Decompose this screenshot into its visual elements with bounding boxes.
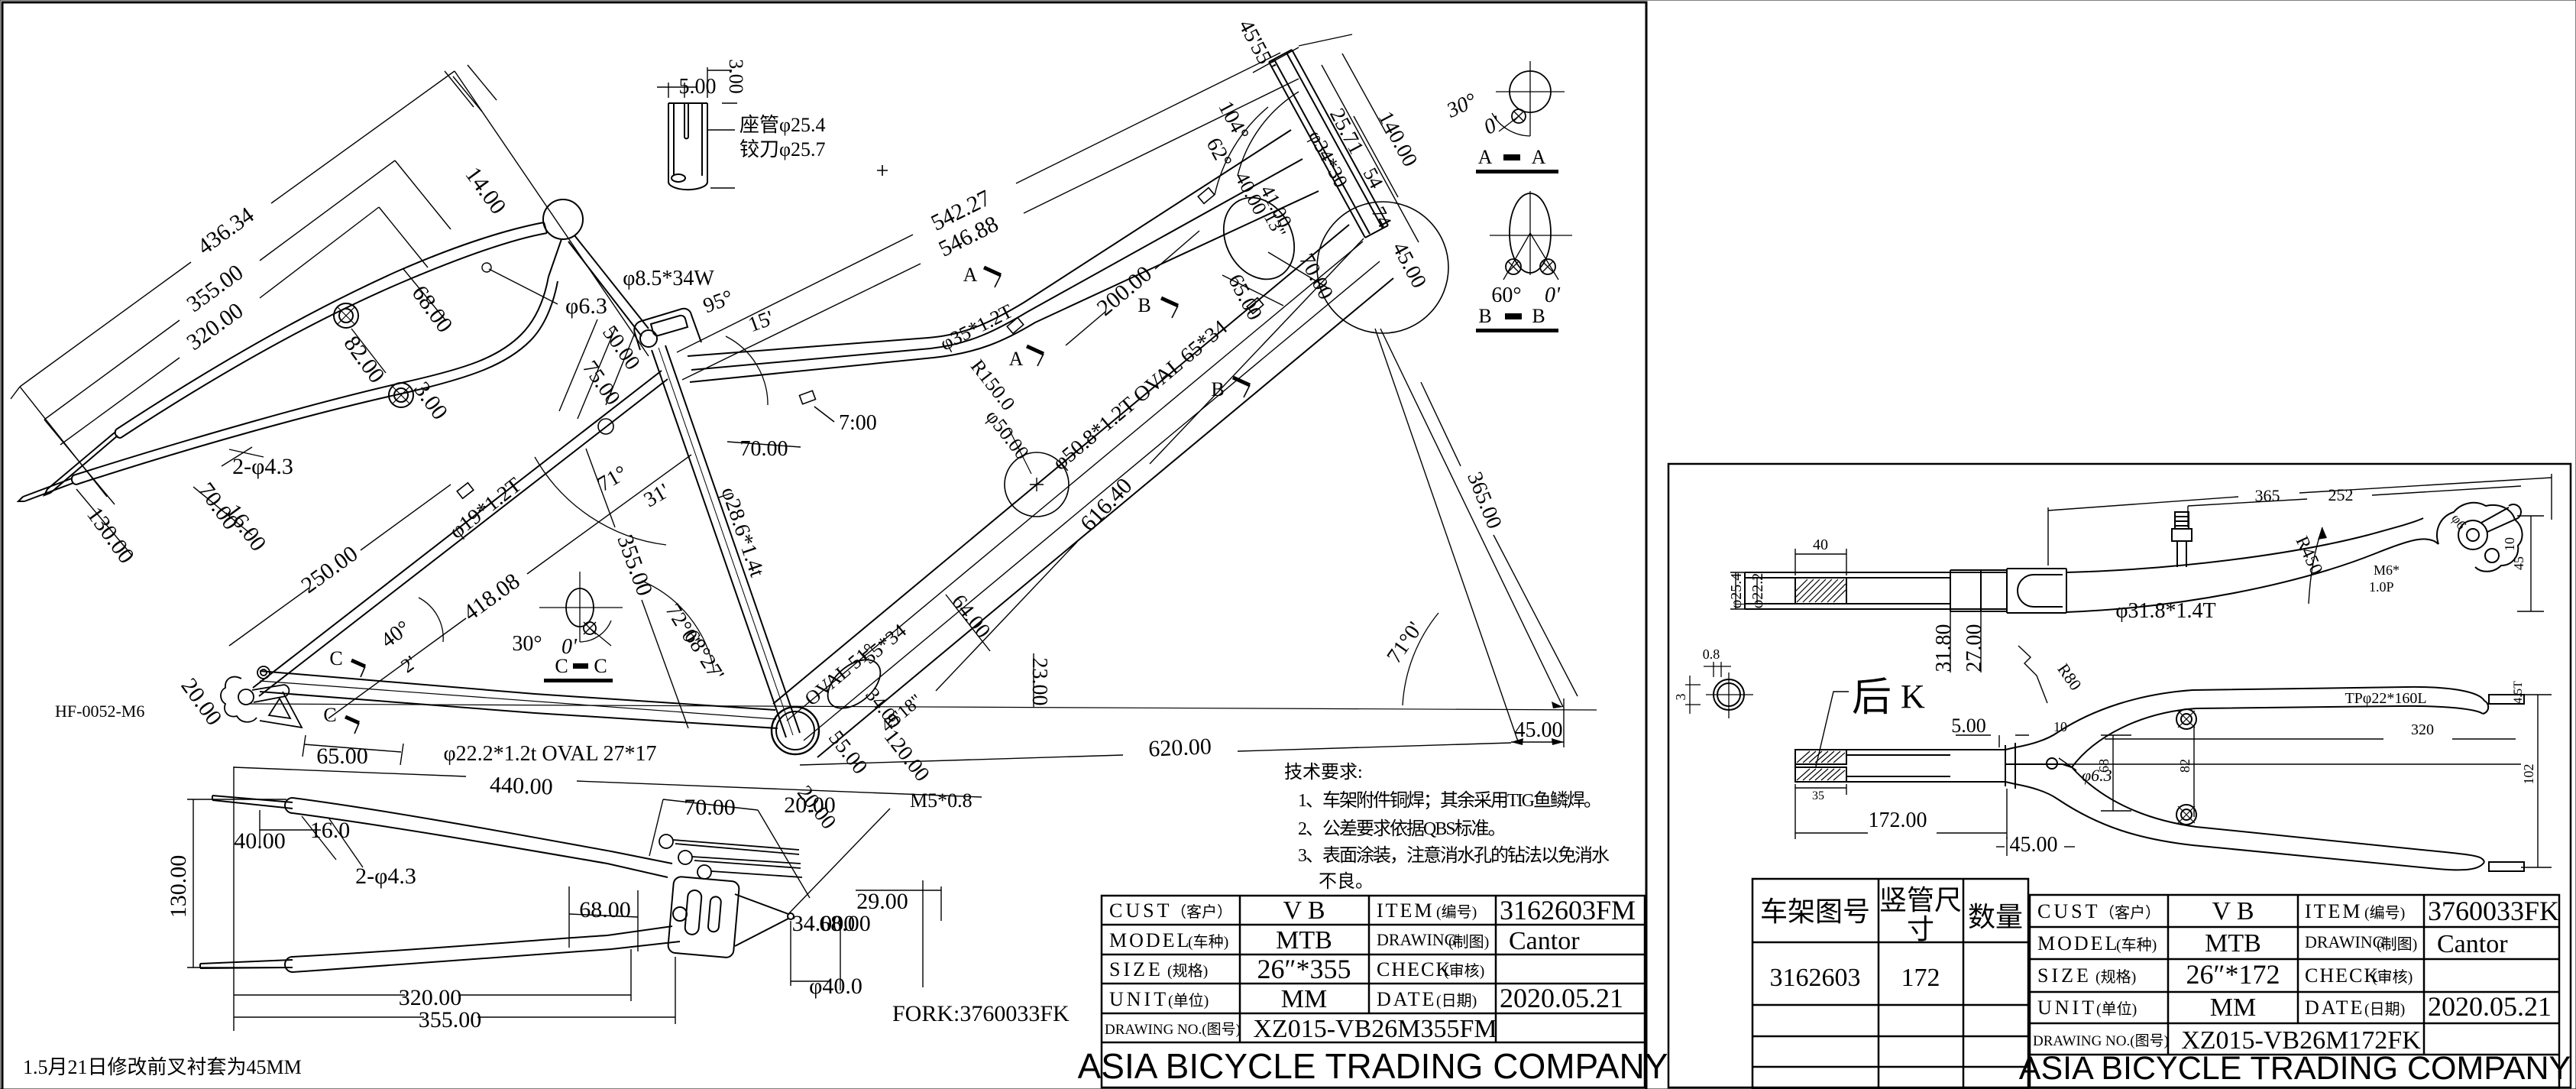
- svg-text:26″*172: 26″*172: [2186, 959, 2280, 990]
- svg-text:(制图): (制图): [1448, 933, 1489, 951]
- svg-text:82.00: 82.00: [338, 331, 389, 387]
- svg-text:60°: 60°: [1491, 284, 1521, 307]
- svg-text:45.00: 45.00: [1515, 718, 1563, 742]
- svg-text:365: 365: [2255, 486, 2280, 505]
- svg-text:68°27': 68°27': [679, 626, 729, 685]
- svg-text:C: C: [329, 647, 342, 669]
- svg-text:45: 45: [2511, 556, 2526, 570]
- svg-text:MM: MM: [1281, 985, 1327, 1013]
- svg-text:(规格): (规格): [2095, 968, 2136, 986]
- svg-text:16.0: 16.0: [310, 818, 351, 843]
- svg-text:(单位): (单位): [1168, 992, 1209, 1010]
- svg-text:CUST: CUST: [2037, 900, 2100, 922]
- svg-text:Cantor: Cantor: [1509, 927, 1580, 955]
- svg-text:（客户）: （客户）: [1171, 903, 1232, 921]
- svg-text:68.00: 68.00: [819, 911, 871, 936]
- svg-text:CUST: CUST: [1109, 899, 1172, 922]
- svg-text:UNIT: UNIT: [1109, 988, 1169, 1010]
- svg-text:20.00: 20.00: [784, 792, 836, 818]
- svg-text:14.00: 14.00: [460, 162, 510, 219]
- svg-text:K: K: [1901, 678, 1925, 715]
- svg-text:φ40.0: φ40.0: [809, 974, 862, 999]
- svg-text:(审核): (审核): [1444, 962, 1484, 980]
- svg-text:MTB: MTB: [1276, 926, 1332, 954]
- svg-text:5.00: 5.00: [1951, 715, 1986, 737]
- svg-text:DATE: DATE: [2305, 997, 2364, 1019]
- svg-text:3、表面涂装，注意消水孔的钻法以免消水: 3、表面涂装，注意消水孔的钻法以免消水: [1298, 845, 1610, 866]
- svg-text:A: A: [1009, 348, 1024, 370]
- svg-text:1.0P: 1.0P: [2369, 579, 2394, 595]
- svg-text:(制图): (制图): [2377, 935, 2417, 953]
- svg-text:2、公差要求依据QBS标准。: 2、公差要求依据QBS标准。: [1298, 818, 1505, 839]
- svg-text:MM: MM: [2210, 993, 2256, 1022]
- svg-text:HF-0052-M6: HF-0052-M6: [55, 702, 144, 721]
- svg-text:27.00: 27.00: [1963, 624, 1986, 673]
- svg-text:54: 54: [1359, 164, 1388, 193]
- svg-text:C: C: [555, 655, 568, 677]
- svg-text:10: 10: [2053, 719, 2067, 734]
- svg-text:(日期): (日期): [1436, 993, 1477, 1010]
- svg-text:68.00: 68.00: [579, 897, 631, 922]
- svg-text:26″*355: 26″*355: [1257, 954, 1351, 984]
- svg-text:CHECK: CHECK: [2305, 964, 2380, 987]
- svg-text:70.00: 70.00: [740, 437, 788, 461]
- svg-text:4.5T: 4.5T: [2512, 681, 2525, 704]
- svg-text:DRAWING: DRAWING: [2305, 932, 2385, 951]
- svg-text:102: 102: [2521, 764, 2536, 785]
- svg-text:55.00: 55.00: [824, 726, 872, 779]
- svg-text:(编号): (编号): [1436, 903, 1477, 921]
- svg-text:B: B: [1532, 305, 1545, 327]
- svg-text:φ22.2: φ22.2: [1749, 573, 1766, 609]
- svg-text:3.00: 3.00: [409, 377, 453, 424]
- svg-text:R80: R80: [2053, 660, 2086, 694]
- svg-text:3760033FK: 3760033FK: [2428, 896, 2559, 926]
- svg-text:φ8.5*34W: φ8.5*34W: [623, 267, 714, 290]
- svg-text:95°: 95°: [700, 286, 736, 319]
- svg-text:252: 252: [2328, 485, 2354, 504]
- svg-text:418.08: 418.08: [458, 569, 524, 626]
- svg-text:30°: 30°: [512, 632, 542, 656]
- svg-text:B: B: [1211, 378, 1224, 400]
- svg-text:82: 82: [2177, 759, 2193, 773]
- svg-text:2020.05.21: 2020.05.21: [2428, 991, 2552, 1022]
- svg-text:0.8: 0.8: [1703, 647, 1720, 662]
- svg-text:3: 3: [1673, 694, 1688, 701]
- svg-text:DATE: DATE: [1377, 988, 1436, 1010]
- svg-text:FORK:3760033FK: FORK:3760033FK: [892, 1001, 1070, 1026]
- svg-text:31.80: 31.80: [1932, 624, 1956, 673]
- svg-text:320: 320: [2411, 721, 2434, 738]
- svg-text:数量: 数量: [1968, 902, 2023, 932]
- svg-text:70.00: 70.00: [1294, 250, 1338, 303]
- svg-text:DRAWING NO.(图号): DRAWING NO.(图号): [2033, 1033, 2169, 1049]
- svg-text:616.40: 616.40: [1076, 473, 1138, 536]
- svg-text:3162603: 3162603: [1770, 964, 1861, 992]
- svg-text:B: B: [1138, 294, 1150, 316]
- svg-text:SIZE: SIZE: [1109, 958, 1163, 980]
- svg-text:ITEM: ITEM: [2305, 900, 2363, 922]
- svg-text:MODEL: MODEL: [2037, 932, 2119, 954]
- svg-text:MTB: MTB: [2205, 929, 2261, 958]
- svg-text:40: 40: [1813, 536, 1828, 553]
- svg-text:440.00: 440.00: [490, 772, 554, 799]
- svg-text:φ19*1.2T: φ19*1.2T: [445, 473, 526, 543]
- svg-text:ITEM: ITEM: [1377, 899, 1435, 922]
- svg-text:SIZE: SIZE: [2037, 964, 2092, 987]
- svg-text:15': 15': [745, 306, 777, 337]
- svg-text:寸: 寸: [1907, 914, 1934, 945]
- svg-text:φ50.8*1.2T OVAL 65*34: φ50.8*1.2T OVAL 65*34: [1048, 316, 1231, 475]
- svg-text:V B: V B: [1283, 896, 1325, 925]
- svg-text:技术要求:: 技术要求:: [1284, 762, 1363, 783]
- svg-text:65.00: 65.00: [316, 744, 368, 769]
- svg-text:ASIA BICYCLE TRADING COMPANY: ASIA BICYCLE TRADING COMPANY: [2019, 1050, 2571, 1087]
- svg-text:ASIA BICYCLE TRADING COMPANY: ASIA BICYCLE TRADING COMPANY: [1078, 1046, 1668, 1086]
- svg-text:MODEL: MODEL: [1109, 929, 1191, 951]
- svg-text:A: A: [1532, 146, 1546, 168]
- svg-text:71°0': 71°0': [1383, 617, 1428, 667]
- svg-text:436.34: 436.34: [193, 203, 258, 260]
- svg-text:B: B: [1478, 305, 1491, 327]
- svg-text:40.00: 40.00: [234, 828, 286, 854]
- svg-text:40°: 40°: [377, 616, 415, 653]
- svg-text:A: A: [1478, 146, 1493, 168]
- svg-text:φ35*1.2T: φ35*1.2T: [937, 300, 1016, 355]
- svg-text:M6*: M6*: [2374, 562, 2400, 578]
- svg-text:(规格): (规格): [1167, 962, 1208, 980]
- svg-text:0': 0': [1545, 284, 1561, 307]
- svg-text:(日期): (日期): [2364, 1001, 2405, 1018]
- svg-text:172: 172: [1901, 964, 1940, 992]
- svg-text:CHECK: CHECK: [1377, 958, 1451, 980]
- svg-text:140.00: 140.00: [1374, 108, 1422, 171]
- svg-text:31': 31': [640, 479, 674, 512]
- svg-text:DRAWING NO.(图号): DRAWING NO.(图号): [1105, 1022, 1241, 1038]
- svg-text:250.00: 250.00: [296, 541, 362, 598]
- svg-text:355.00: 355.00: [419, 1007, 482, 1032]
- svg-text:5.00: 5.00: [679, 75, 717, 99]
- svg-text:130.00: 130.00: [82, 502, 139, 568]
- svg-text:20.00: 20.00: [176, 673, 226, 730]
- svg-text:(编号): (编号): [2364, 904, 2405, 922]
- svg-text:XZ015-VB26M355FM: XZ015-VB26M355FM: [1253, 1015, 1497, 1043]
- svg-text:68: 68: [2096, 759, 2112, 773]
- svg-text:UNIT: UNIT: [2037, 997, 2097, 1019]
- svg-text:365.00: 365.00: [1462, 468, 1506, 532]
- svg-text:355.00: 355.00: [612, 531, 657, 599]
- svg-text:R450: R450: [2292, 533, 2327, 578]
- svg-text:φ28.6*1.4t: φ28.6*1.4t: [717, 485, 769, 581]
- svg-text:C: C: [594, 655, 607, 677]
- svg-text:（客户）: （客户）: [2099, 904, 2160, 922]
- svg-text:DRAWING: DRAWING: [1377, 930, 1457, 949]
- svg-text:φ22.2*1.2t OVAL 27*17: φ22.2*1.2t OVAL 27*17: [443, 742, 656, 766]
- svg-text:3162603FM: 3162603FM: [1500, 895, 1636, 925]
- svg-text:V B: V B: [2212, 897, 2254, 925]
- svg-text:172.00: 172.00: [1869, 809, 1927, 832]
- svg-text:座管φ25.4: 座管φ25.4: [739, 114, 826, 136]
- svg-text:71°: 71°: [594, 461, 631, 496]
- svg-text:A: A: [963, 264, 978, 286]
- svg-text:620.00: 620.00: [1148, 734, 1212, 762]
- svg-text:2-φ4.3: 2-φ4.3: [355, 864, 416, 889]
- svg-text:竖管尺: 竖管尺: [1879, 885, 1962, 916]
- svg-text:φ31.8*1.4T: φ31.8*1.4T: [2115, 599, 2215, 623]
- svg-text:45.00: 45.00: [1387, 238, 1431, 292]
- svg-text:7:00: 7:00: [839, 411, 877, 435]
- svg-text:120.00: 120.00: [879, 725, 934, 786]
- svg-text:45.00: 45.00: [2010, 833, 2058, 857]
- svg-text:2-φ4.3: 2-φ4.3: [232, 454, 293, 479]
- svg-text:车架图号: 车架图号: [1760, 896, 1870, 927]
- svg-text:30°: 30°: [1442, 89, 1481, 123]
- svg-text:2020.05.21: 2020.05.21: [1500, 983, 1623, 1013]
- svg-text:后: 后: [1852, 676, 1892, 720]
- svg-text:M5*0.8: M5*0.8: [910, 789, 972, 812]
- svg-text:70.00: 70.00: [684, 795, 736, 820]
- svg-text:35: 35: [1812, 789, 1824, 802]
- svg-text:3.00: 3.00: [725, 59, 747, 94]
- svg-text:(车种): (车种): [1188, 933, 1228, 951]
- svg-text:1、车架附件铜焊；其余采用TIG鱼鳞焊。: 1、车架附件铜焊；其余采用TIG鱼鳞焊。: [1298, 790, 1600, 811]
- svg-text:φ6: φ6: [2448, 511, 2470, 532]
- svg-text:(单位): (单位): [2096, 1000, 2137, 1018]
- svg-text:10: 10: [2502, 537, 2517, 551]
- svg-text:C: C: [323, 704, 336, 726]
- svg-text:TPφ22*160L: TPφ22*160L: [2345, 690, 2426, 707]
- svg-text:铰刀φ25.7: 铰刀φ25.7: [739, 138, 826, 160]
- svg-text:(审核): (审核): [2372, 968, 2413, 986]
- svg-text:1.5月21日修改前叉衬套为45MM: 1.5月21日修改前叉衬套为45MM: [23, 1056, 302, 1078]
- svg-text:(车种): (车种): [2116, 936, 2157, 954]
- svg-text:2': 2': [396, 651, 420, 677]
- svg-text:φ6.3: φ6.3: [565, 293, 607, 319]
- svg-text:Cantor: Cantor: [2437, 930, 2508, 958]
- svg-text:68.00: 68.00: [406, 280, 457, 337]
- svg-text:φ25.4: φ25.4: [1728, 573, 1745, 609]
- svg-text:不良。: 不良。: [1319, 871, 1374, 892]
- svg-text:130.00: 130.00: [166, 855, 191, 919]
- svg-text:23.00: 23.00: [1027, 658, 1051, 706]
- svg-text:45'55": 45'55": [1234, 16, 1280, 76]
